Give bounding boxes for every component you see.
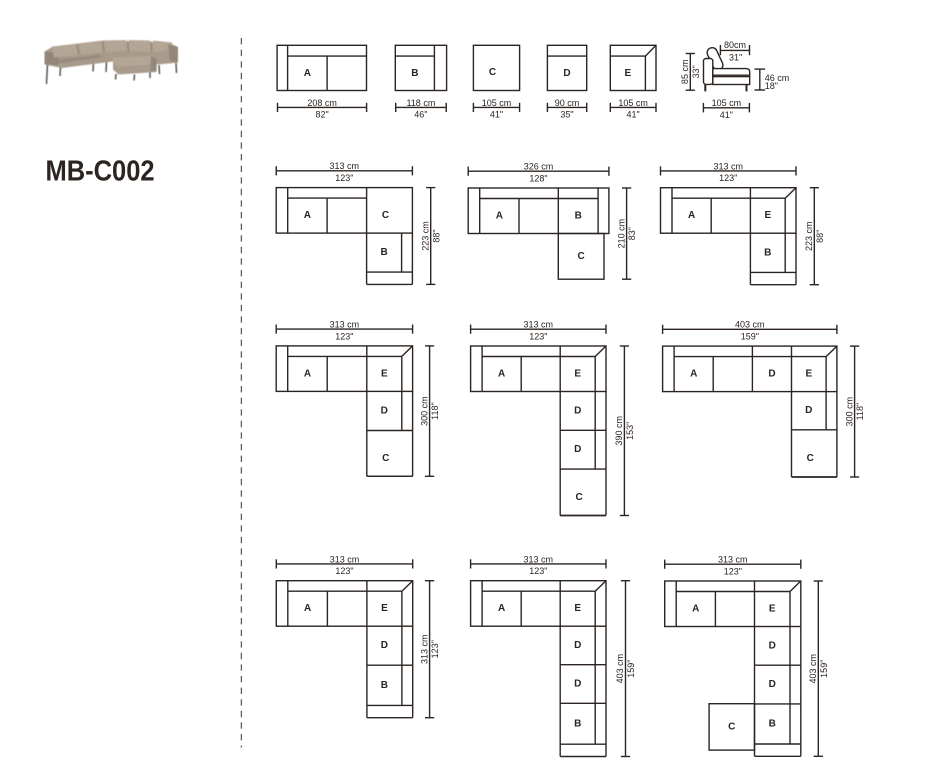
svg-text:313 cm: 313 cm	[330, 320, 360, 330]
svg-text:313 cm: 313 cm	[524, 554, 554, 564]
svg-text:18": 18"	[765, 81, 778, 91]
svg-text:85 cm: 85 cm	[680, 60, 690, 85]
svg-text:31": 31"	[729, 52, 742, 62]
svg-text:D: D	[769, 679, 776, 690]
svg-text:313 cm: 313 cm	[718, 555, 748, 565]
svg-text:A: A	[690, 369, 697, 380]
svg-text:403 cm: 403 cm	[735, 320, 765, 330]
svg-text:118": 118"	[430, 402, 440, 420]
svg-text:E: E	[769, 604, 776, 615]
svg-text:105 cm: 105 cm	[482, 98, 512, 108]
svg-text:A: A	[692, 604, 699, 615]
svg-text:46": 46"	[414, 110, 427, 120]
svg-text:D: D	[574, 640, 581, 651]
svg-text:313 cm: 313 cm	[330, 554, 360, 564]
svg-text:A: A	[304, 368, 311, 379]
svg-text:C: C	[575, 492, 582, 503]
svg-text:313 cm: 313 cm	[524, 320, 554, 330]
svg-text:105 cm: 105 cm	[618, 98, 648, 108]
svg-text:MB-C002: MB-C002	[46, 155, 155, 187]
svg-text:128": 128"	[529, 173, 547, 183]
svg-text:E: E	[764, 210, 771, 221]
svg-text:C: C	[382, 453, 389, 464]
svg-text:C: C	[807, 453, 814, 464]
svg-text:123": 123"	[529, 331, 547, 341]
svg-text:88": 88"	[431, 229, 441, 242]
svg-text:D: D	[574, 405, 581, 416]
svg-text:B: B	[380, 247, 387, 258]
svg-text:41": 41"	[720, 110, 733, 120]
svg-text:A: A	[304, 210, 311, 221]
svg-text:E: E	[381, 603, 388, 614]
svg-text:88": 88"	[815, 230, 825, 243]
svg-text:123": 123"	[529, 566, 547, 576]
svg-text:41": 41"	[626, 110, 639, 120]
svg-text:83": 83"	[627, 227, 637, 240]
svg-text:A: A	[498, 603, 505, 614]
svg-text:D: D	[768, 369, 775, 380]
svg-text:123": 123"	[335, 566, 353, 576]
svg-text:E: E	[805, 369, 812, 380]
svg-text:300 cm: 300 cm	[844, 397, 854, 427]
svg-text:159": 159"	[741, 332, 759, 342]
svg-text:D: D	[381, 405, 388, 416]
svg-text:123": 123"	[335, 173, 353, 183]
svg-text:123": 123"	[335, 331, 353, 341]
svg-text:210 cm: 210 cm	[616, 219, 626, 249]
svg-text:A: A	[498, 369, 505, 380]
svg-text:159": 159"	[819, 660, 829, 678]
svg-text:B: B	[574, 718, 581, 729]
svg-text:D: D	[574, 444, 581, 455]
svg-text:41": 41"	[490, 110, 503, 120]
svg-text:105 cm: 105 cm	[712, 98, 742, 108]
svg-text:33": 33"	[691, 65, 701, 78]
svg-text:159": 159"	[626, 659, 636, 677]
svg-text:390 cm: 390 cm	[614, 416, 624, 446]
svg-text:E: E	[574, 603, 581, 614]
svg-text:D: D	[574, 679, 581, 690]
svg-text:35": 35"	[560, 110, 573, 120]
svg-text:90 cm: 90 cm	[555, 98, 580, 108]
svg-text:313 cm: 313 cm	[419, 634, 429, 664]
svg-text:E: E	[381, 368, 388, 379]
svg-text:123": 123"	[719, 173, 737, 183]
svg-text:D: D	[563, 68, 570, 79]
svg-text:C: C	[728, 721, 735, 732]
svg-text:118": 118"	[855, 403, 865, 421]
svg-text:118 cm: 118 cm	[406, 98, 435, 108]
svg-text:153": 153"	[625, 422, 635, 440]
svg-text:123": 123"	[724, 566, 742, 576]
svg-text:B: B	[769, 719, 776, 730]
svg-text:223 cm: 223 cm	[420, 221, 430, 251]
svg-text:82": 82"	[315, 110, 328, 120]
svg-text:B: B	[411, 68, 418, 79]
svg-text:B: B	[575, 211, 582, 222]
svg-text:313 cm: 313 cm	[713, 161, 743, 171]
svg-text:80cm: 80cm	[724, 40, 746, 50]
svg-text:B: B	[764, 247, 771, 258]
svg-text:123": 123"	[430, 640, 440, 658]
svg-text:313 cm: 313 cm	[330, 161, 360, 171]
svg-text:403 cm: 403 cm	[808, 654, 818, 684]
svg-text:E: E	[624, 68, 631, 79]
svg-text:D: D	[381, 640, 388, 651]
svg-text:B: B	[381, 680, 388, 691]
svg-text:223 cm: 223 cm	[804, 221, 814, 251]
svg-text:E: E	[574, 369, 581, 380]
svg-text:C: C	[577, 251, 584, 262]
svg-text:D: D	[805, 405, 812, 416]
svg-text:D: D	[769, 640, 776, 651]
svg-text:A: A	[496, 211, 503, 222]
svg-text:A: A	[304, 603, 311, 614]
svg-text:C: C	[382, 210, 389, 221]
svg-text:A: A	[304, 68, 311, 79]
svg-text:300 cm: 300 cm	[419, 396, 429, 426]
svg-text:403 cm: 403 cm	[615, 654, 625, 684]
svg-text:208 cm: 208 cm	[307, 98, 337, 108]
svg-text:326 cm: 326 cm	[524, 162, 554, 172]
svg-text:C: C	[489, 67, 496, 78]
svg-text:A: A	[688, 210, 695, 221]
